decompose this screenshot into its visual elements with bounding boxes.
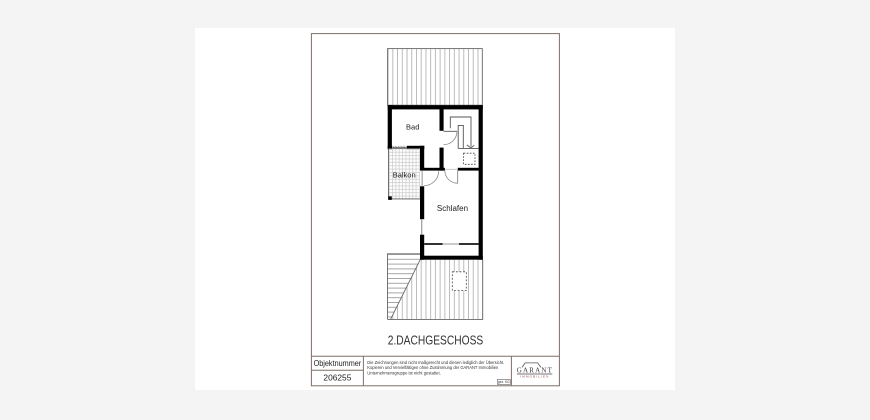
svg-text:Objektnummer: Objektnummer — [314, 359, 362, 368]
svg-text:Schlafen: Schlafen — [437, 204, 468, 213]
svg-text:GARANT: GARANT — [517, 366, 553, 374]
svg-text:Die Zeichnungen sind nicht maß: Die Zeichnungen sind nicht maßgerecht un… — [367, 359, 504, 365]
svg-text:IMMOBILIEN: IMMOBILIEN — [520, 374, 549, 378]
svg-text:Bad: Bad — [406, 123, 419, 132]
svg-text:2.DACHGESCHOSS: 2.DACHGESCHOSS — [388, 335, 484, 348]
svg-text:gez. KG: gez. KG — [498, 380, 510, 384]
svg-text:206255: 206255 — [323, 373, 351, 383]
svg-text:Balkon: Balkon — [393, 171, 416, 180]
svg-text:Unternehmensgruppe ist nicht g: Unternehmensgruppe ist nicht gestattet. — [367, 370, 441, 375]
